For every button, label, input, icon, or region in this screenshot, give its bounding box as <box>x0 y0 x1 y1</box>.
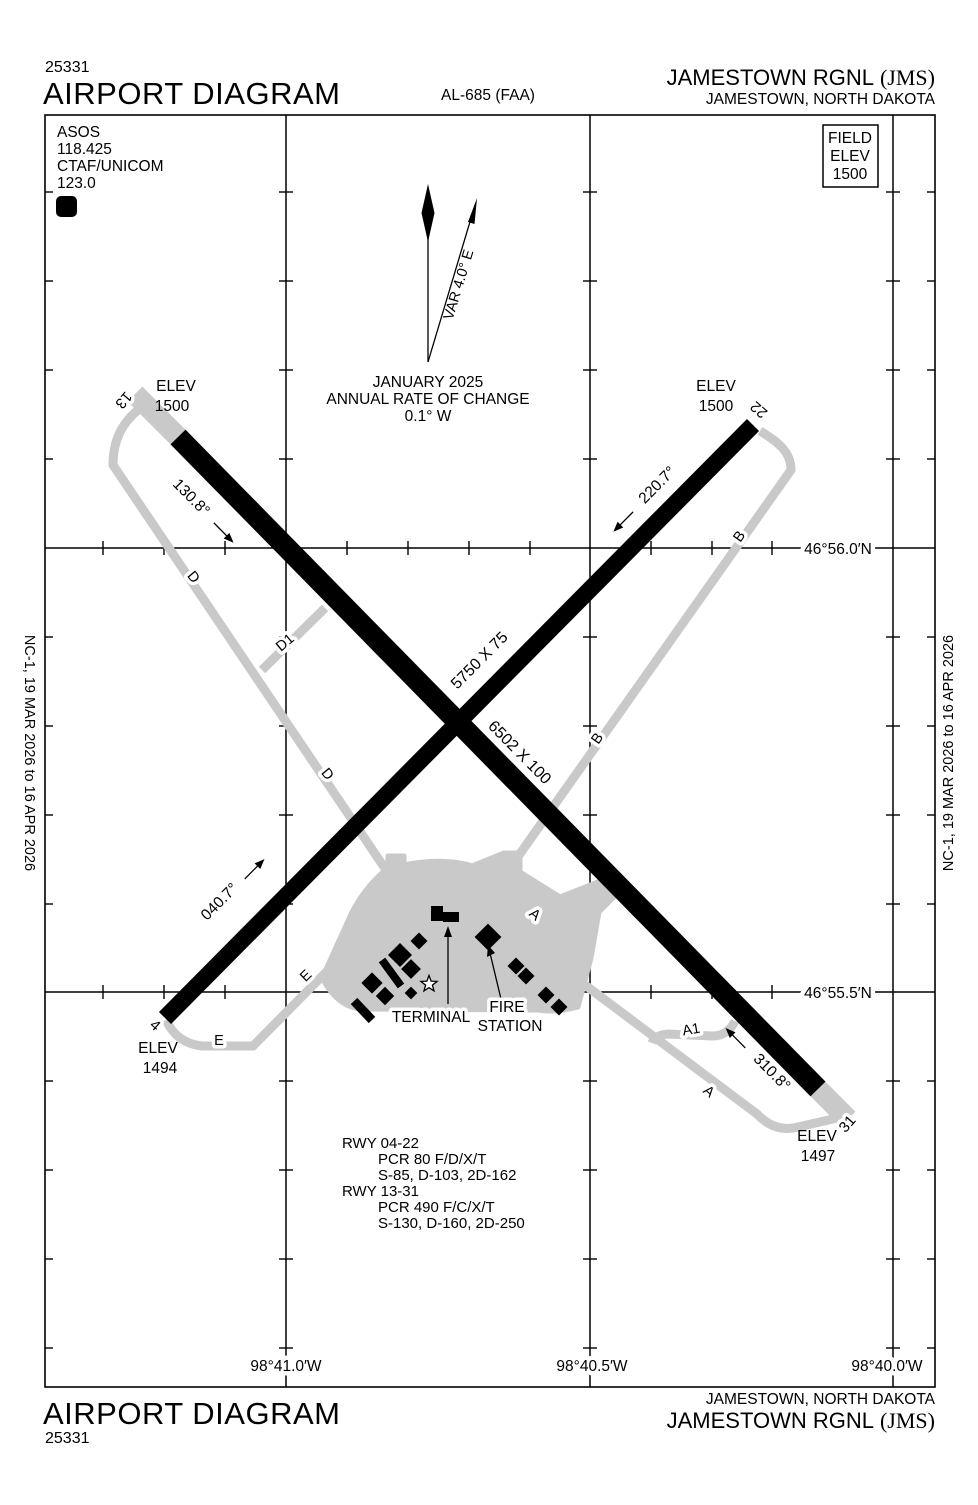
terminal-label: TERMINAL <box>392 1009 471 1026</box>
runway-data-line: S-130, D-160, 2D-250 <box>378 1215 525 1232</box>
true-north-arrowhead-icon <box>422 184 435 242</box>
runway-data-line: RWY 13-31 <box>342 1183 419 1200</box>
al-number: AL-685 (FAA) <box>441 87 535 104</box>
runway-22-number: 22 <box>747 398 771 422</box>
elev-22-value: 1500 <box>699 398 734 415</box>
heading-arrow-line <box>245 865 259 879</box>
longitude-label: 98°40.0′W <box>851 1358 923 1375</box>
fire-station-label-line2: STATION <box>478 1018 543 1035</box>
compass-rate-value: 0.1° W <box>405 408 452 425</box>
ctaf-label: CTAF/UNICOM <box>57 158 163 175</box>
longitude-label: 98°40.5′W <box>556 1358 628 1375</box>
heading-13-label: 130.8° <box>169 476 213 520</box>
taxiway-d-path <box>113 404 390 876</box>
comm-info-block: ASOS 118.425 CTAF/UNICOM 123.0 D <box>56 124 163 217</box>
north-arrow-group: VAR 4.0° E JANUARY 2025 ANNUAL RATE OF C… <box>326 184 529 425</box>
footer-airport-name: JAMESTOWN RGNL(JMS) <box>667 1408 935 1433</box>
compass-rate-label: ANNUAL RATE OF CHANGE <box>326 391 529 408</box>
header-airport-name: JAMESTOWN RGNL(JMS) <box>667 65 935 90</box>
heading-arrow-line <box>214 523 228 537</box>
diagram-canvas: 25331 AIRPORT DIAGRAM AL-685 (FAA) JAMES… <box>0 0 978 1500</box>
heading-arrow-line <box>619 512 633 526</box>
elev-13-value: 1500 <box>155 398 190 415</box>
elev-label: ELEV <box>138 1040 178 1057</box>
edition-note-right: NC-1, 19 MAR 2026 to 16 APR 2026 <box>941 635 957 871</box>
elev-04-value: 1494 <box>143 1060 178 1077</box>
terminal-building-wing <box>443 912 459 922</box>
magnetic-north-arrowhead-icon <box>468 198 477 224</box>
runway-data-line: PCR 80 F/D/X/T <box>378 1151 486 1168</box>
magnetic-variation-label: VAR 4.0° E <box>441 248 478 322</box>
fire-station-label-line1: FIRE <box>489 999 524 1016</box>
latitude-label: 46°56.0′N <box>804 541 872 558</box>
field-elev-box: FIELD ELEV 1500 <box>823 125 878 187</box>
runway-13-number: 13 <box>112 388 136 412</box>
header-page-code: 25331 <box>45 59 90 76</box>
footer-title: AIRPORT DIAGRAM <box>43 1396 340 1431</box>
footer-page-code: 25331 <box>45 1430 90 1447</box>
field-elev-line1: FIELD <box>828 130 872 147</box>
taxiway-a-path <box>585 985 846 1128</box>
elev-label: ELEV <box>696 378 736 395</box>
notam-d-letter: D <box>61 199 72 216</box>
runway-data-block: RWY 04-22 PCR 80 F/D/X/T S-85, D-103, 2D… <box>342 1135 525 1232</box>
asos-label: ASOS <box>57 124 100 141</box>
compass-date: JANUARY 2025 <box>373 374 484 391</box>
footer-city: JAMESTOWN, NORTH DAKOTA <box>706 1391 936 1408</box>
runway-data-line: PCR 490 F/C/X/T <box>378 1199 495 1216</box>
terminal-building <box>431 906 443 921</box>
heading-arrow-line <box>731 1034 745 1048</box>
heading-04-label: 040.7° <box>198 880 242 924</box>
header-city: JAMESTOWN, NORTH DAKOTA <box>706 91 936 108</box>
taxiway-a1-label: A1 <box>681 1021 701 1040</box>
runway-data-line: S-85, D-103, 2D-162 <box>378 1167 516 1184</box>
airport-diagram-page: 25331 AIRPORT DIAGRAM AL-685 (FAA) JAMES… <box>0 0 978 1500</box>
taxiway-e-label: E <box>214 1033 224 1049</box>
field-elev-value: 1500 <box>833 166 868 183</box>
elev-31-value: 1497 <box>801 1148 835 1165</box>
latitude-label: 46°55.5′N <box>804 985 872 1002</box>
elev-label: ELEV <box>156 378 196 395</box>
page-title: AIRPORT DIAGRAM <box>43 76 340 111</box>
runway-04-number: 4 <box>146 1016 163 1034</box>
longitude-label: 98°41.0′W <box>250 1358 322 1375</box>
field-elev-line2: ELEV <box>830 148 870 165</box>
elev-label: ELEV <box>797 1128 837 1145</box>
ctaf-frequency: 123.0 <box>57 175 96 192</box>
runway-data-line: RWY 04-22 <box>342 1135 419 1152</box>
asos-frequency: 118.425 <box>57 141 112 158</box>
edition-note-left: NC-1, 19 MAR 2026 to 16 APR 2026 <box>21 635 37 871</box>
